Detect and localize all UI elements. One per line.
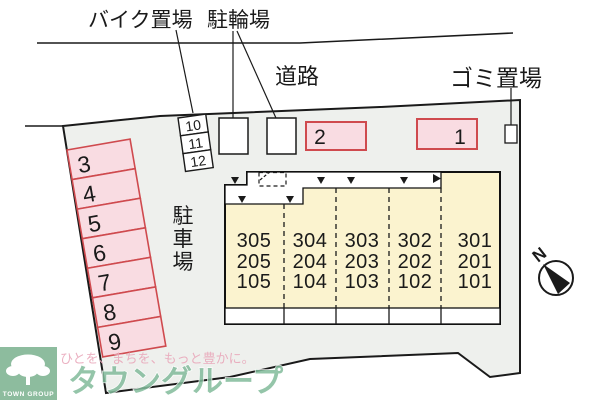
label-road: 道路	[275, 64, 319, 89]
label-bicycle-parking: 駐輪場	[207, 9, 270, 32]
car-parking-char: 車	[173, 228, 194, 251]
logo-text: TOWN GROUP	[3, 391, 54, 398]
room-number: 205	[237, 251, 272, 273]
room-number: 302	[398, 230, 433, 252]
room-number: 204	[293, 251, 328, 273]
site-plan-page: バイク置場 駐輪場 道路 ゴミ置場 3 4 5 6 7 8 9 駐 車 場 10…	[0, 0, 600, 400]
road-edge-top	[37, 33, 513, 43]
watermark-brand: タウングループ	[68, 364, 284, 399]
room-number: 101	[458, 271, 493, 293]
lot-2-number: 2	[314, 126, 326, 149]
room-number: 303	[345, 230, 380, 252]
garbage-box	[505, 125, 517, 143]
lot-1-box	[417, 119, 477, 149]
lot-1-number: 1	[454, 126, 466, 149]
site-plan-map: バイク置場 駐輪場 道路 ゴミ置場 3 4 5 6 7 8 9 駐 車 場 10…	[0, 0, 600, 400]
car-parking-char: 駐	[173, 205, 194, 228]
room-number: 104	[293, 271, 328, 293]
room-number: 305	[237, 230, 272, 252]
label-bike-parking: バイク置場	[88, 9, 193, 32]
room-number: 102	[398, 271, 433, 293]
bicycle-parking-box	[219, 118, 248, 154]
watermark: ひとを、まちを、もっと豊かに。 タウングループ TOWN GROUP	[0, 347, 284, 400]
room-number: 304	[293, 230, 328, 252]
room-number: 203	[345, 251, 380, 273]
room-number: 105	[237, 271, 272, 293]
room-number: 103	[345, 271, 380, 293]
balcony-strip	[225, 308, 500, 324]
town-group-logo: TOWN GROUP	[0, 347, 57, 400]
room-number: 301	[458, 230, 493, 252]
small-stall-number: 10	[184, 116, 202, 134]
label-car-parking: 駐 車 場	[173, 205, 194, 274]
room-number: 201	[458, 251, 493, 273]
label-garbage: ゴミ置場	[450, 65, 542, 91]
compass: N	[529, 244, 573, 295]
room-number: 202	[398, 251, 433, 273]
small-stall-number: 11	[187, 134, 204, 152]
building: 305 205 105 304 204 104 303 203 103 302 …	[225, 172, 500, 324]
bicycle-parking-box	[267, 118, 296, 154]
car-parking-char: 場	[173, 251, 194, 274]
small-stall-number: 12	[189, 152, 207, 170]
